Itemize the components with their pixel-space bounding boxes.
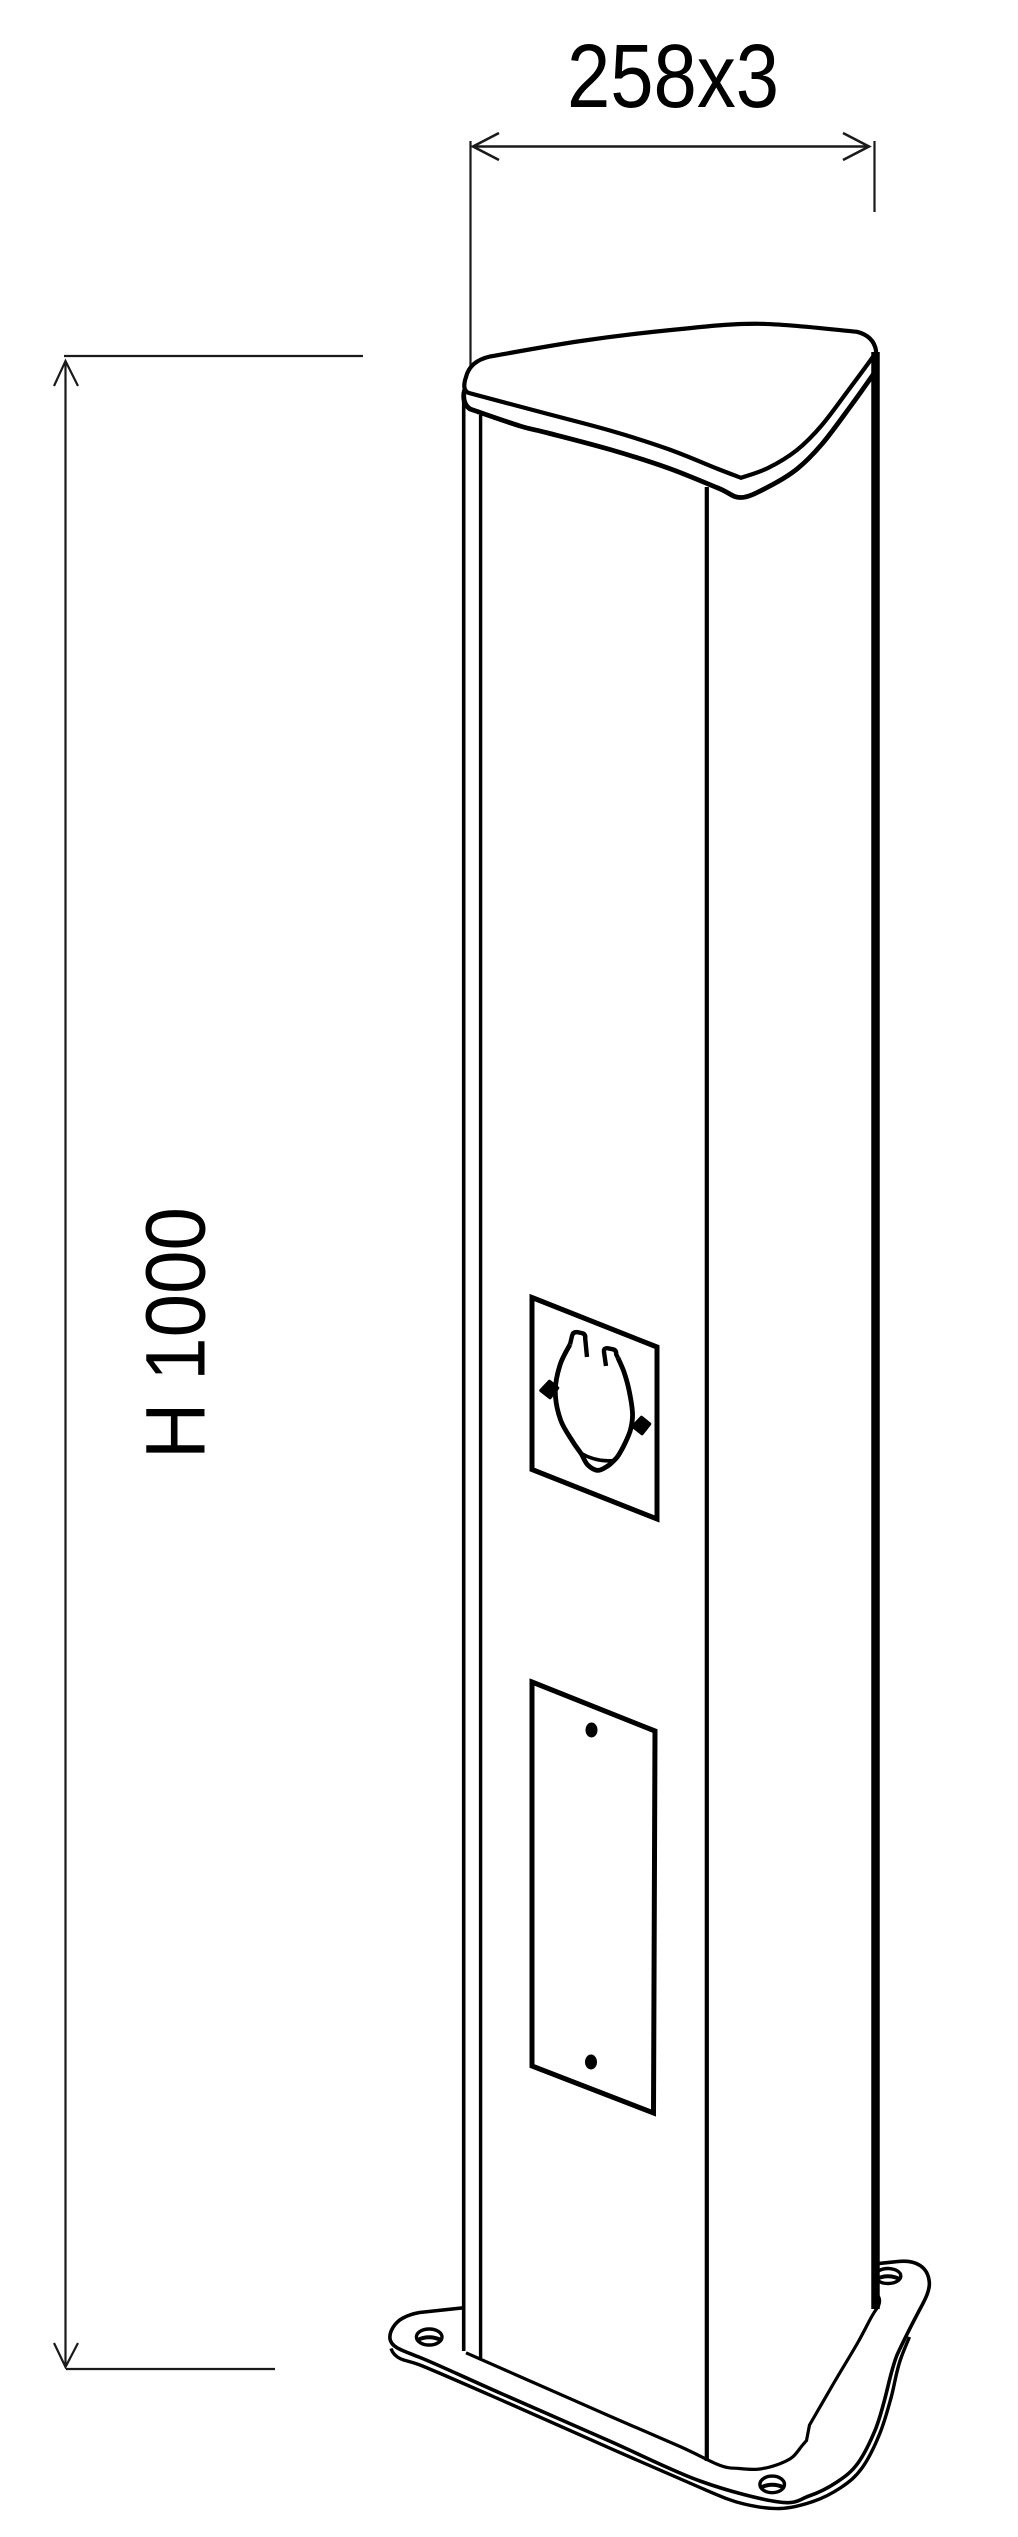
svg-text:H 1000: H 1000 bbox=[129, 1207, 223, 1459]
svg-text:258x3: 258x3 bbox=[567, 27, 779, 127]
